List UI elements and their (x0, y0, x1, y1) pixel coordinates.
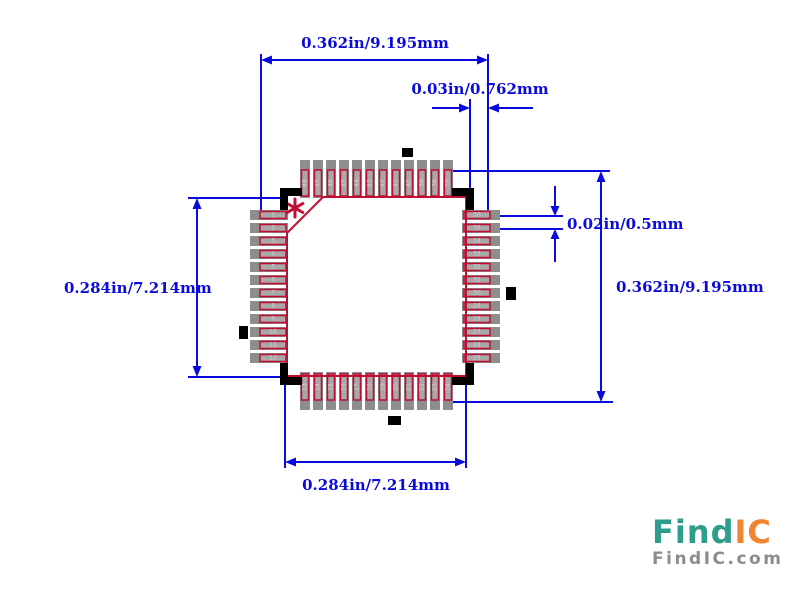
pad-pin-7: 7 (250, 288, 288, 298)
pin-number: 10 (269, 329, 277, 336)
pad-pin-32: 32 (462, 262, 500, 272)
arrow-left-icon (488, 104, 499, 113)
pad-pin-31: 31 (462, 275, 500, 285)
pad-pin-34: 34 (462, 236, 500, 246)
pin-number: 32 (473, 264, 481, 271)
arrow-left-icon (285, 458, 296, 467)
pad-pin-30: 30 (462, 288, 500, 298)
pin-number: 42 (380, 179, 387, 187)
pad-pin-45: 45 (339, 160, 349, 198)
arrow-right-icon (477, 56, 488, 65)
pin-number: 26 (473, 342, 481, 349)
dot-top (402, 148, 413, 157)
pin-number: 27 (473, 329, 481, 336)
pad-pin-9: 9 (250, 314, 288, 324)
pin-number: 17 (354, 383, 361, 391)
pin-number: 44 (354, 179, 361, 187)
label-pad-pitch: 0.02in/0.5mm (567, 216, 683, 233)
arrow-up-icon (551, 229, 560, 239)
pin-number: 1 (271, 212, 275, 219)
pin-number: 38 (432, 179, 439, 187)
pad-pin-26: 26 (462, 340, 500, 350)
pin-number: 14 (315, 383, 322, 391)
pad-pin-4: 4 (250, 249, 288, 259)
pin-number: 40 (406, 179, 413, 187)
pin-number: 16 (341, 383, 348, 391)
logo-text-find: Find (652, 513, 735, 551)
pad-pin-28: 28 (462, 314, 500, 324)
pin-number: 5 (271, 264, 275, 271)
pad-pin-14: 14 (313, 372, 323, 410)
dot-left (239, 326, 248, 339)
pin-number: 25 (473, 355, 481, 362)
pad-pin-2: 2 (250, 223, 288, 233)
pad-pin-44: 44 (352, 160, 362, 198)
pad-pin-39: 39 (417, 160, 427, 198)
footprint-diagram-canvas: 4813136471423546153344516433441753243186… (0, 0, 800, 592)
component-body-outline (287, 197, 466, 376)
corner-mark-bottom-right (452, 363, 474, 385)
pad-pin-12: 12 (250, 353, 288, 363)
silkscreen-corner-marks (280, 188, 474, 385)
pad-pin-27: 27 (462, 327, 500, 337)
logo-text-ic: IC (735, 513, 772, 551)
pin-number: 6 (271, 277, 275, 284)
pad-pin-37: 37 (443, 160, 453, 198)
label-pad-length: 0.03in/0.762mm (411, 81, 548, 98)
pin-number: 33 (473, 251, 481, 258)
arrow-down-icon (193, 366, 202, 377)
pin-number: 37 (445, 179, 452, 187)
pad-pin-23: 23 (430, 372, 440, 410)
pin-number: 3 (271, 238, 275, 245)
pin-number: 48 (302, 179, 309, 187)
pad-pin-16: 16 (339, 372, 349, 410)
pin-number: 8 (271, 303, 275, 310)
pad-pin-46: 46 (326, 160, 336, 198)
pad-pin-3: 3 (250, 236, 288, 246)
label-left-body-height: 0.284in/7.214mm (64, 280, 212, 297)
arrow-right-icon (455, 458, 466, 467)
pin-number: 28 (473, 316, 481, 323)
corner-mark-bottom-left (280, 363, 302, 385)
pin-number: 35 (473, 225, 481, 232)
pin-number: 29 (473, 303, 481, 310)
pad-pin-6: 6 (250, 275, 288, 285)
pin-number: 12 (269, 355, 277, 362)
pin-number: 15 (328, 383, 335, 391)
arrow-up-icon (193, 198, 202, 209)
pin-number: 20 (393, 383, 400, 391)
pin-number: 31 (473, 277, 481, 284)
pin-number: 23 (432, 383, 439, 391)
arrow-down-icon (597, 391, 606, 402)
pin-number: 13 (302, 383, 309, 391)
pad-pin-41: 41 (391, 160, 401, 198)
pin-number: 45 (341, 179, 348, 187)
findic-logo-wordmark: FindIC (652, 516, 783, 548)
pad-pin-10: 10 (250, 327, 288, 337)
pad-pin-19: 19 (378, 372, 388, 410)
pad-pin-8: 8 (250, 301, 288, 311)
findic-logo: FindIC FindIC.com (652, 516, 783, 568)
pin-number: 19 (380, 383, 387, 391)
pin-number: 41 (393, 179, 400, 187)
logo-domain-text: FindIC.com (652, 551, 783, 568)
pin-number: 21 (406, 383, 413, 391)
pad-pin-24: 24 (443, 372, 453, 410)
pin-number: 22 (419, 383, 426, 391)
pin-number: 11 (269, 342, 277, 349)
pad-pin-42: 42 (378, 160, 388, 198)
pin-number: 30 (473, 290, 481, 297)
pin-number: 4 (271, 251, 275, 258)
pad-pin-33: 33 (462, 249, 500, 259)
pad-pin-35: 35 (462, 223, 500, 233)
pin-number: 9 (271, 316, 275, 323)
arrow-down-icon (551, 206, 560, 216)
pin-number: 2 (271, 225, 275, 232)
pad-pin-38: 38 (430, 160, 440, 198)
corner-mark-top-right (452, 188, 474, 210)
label-right-lead-span: 0.362in/9.195mm (616, 279, 764, 296)
label-top-lead-span: 0.362in/9.195mm (301, 35, 449, 52)
pin-number: 36 (473, 212, 481, 219)
pad-pin-40: 40 (404, 160, 414, 198)
pin-number: 46 (328, 179, 335, 187)
pad-pin-25: 25 (462, 353, 500, 363)
label-bottom-body-width: 0.284in/7.214mm (302, 477, 450, 494)
pad-pin-17: 17 (352, 372, 362, 410)
arrow-left-icon (261, 56, 272, 65)
pin-number: 47 (315, 179, 322, 187)
pin-number: 24 (445, 383, 452, 391)
pin1-marker-asterisk (287, 199, 303, 217)
dot-bottom (388, 416, 401, 425)
pad-pin-36: 36 (462, 210, 500, 220)
pin-number: 7 (271, 290, 275, 297)
pad-pin-5: 5 (250, 262, 288, 272)
pad-pin-22: 22 (417, 372, 427, 410)
pad-pin-1: 1 (250, 210, 288, 220)
pad-pin-47: 47 (313, 160, 323, 198)
pad-pin-18: 18 (365, 372, 375, 410)
dot-right (506, 287, 516, 300)
pin-number: 43 (367, 179, 374, 187)
arrow-right-icon (459, 104, 470, 113)
pin-number: 34 (473, 238, 481, 245)
pad-pin-11: 11 (250, 340, 288, 350)
arrow-up-icon (597, 171, 606, 182)
pin-number: 18 (367, 383, 374, 391)
pad-pin-21: 21 (404, 372, 414, 410)
pad-pin-15: 15 (326, 372, 336, 410)
pad-pin-43: 43 (365, 160, 375, 198)
pad-pin-20: 20 (391, 372, 401, 410)
pad-pin-29: 29 (462, 301, 500, 311)
pin-number: 39 (419, 179, 426, 187)
